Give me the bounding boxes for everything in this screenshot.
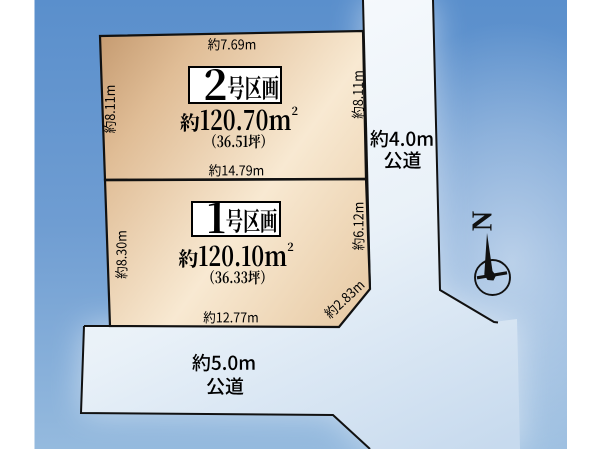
- svg-text:N: N: [467, 211, 498, 231]
